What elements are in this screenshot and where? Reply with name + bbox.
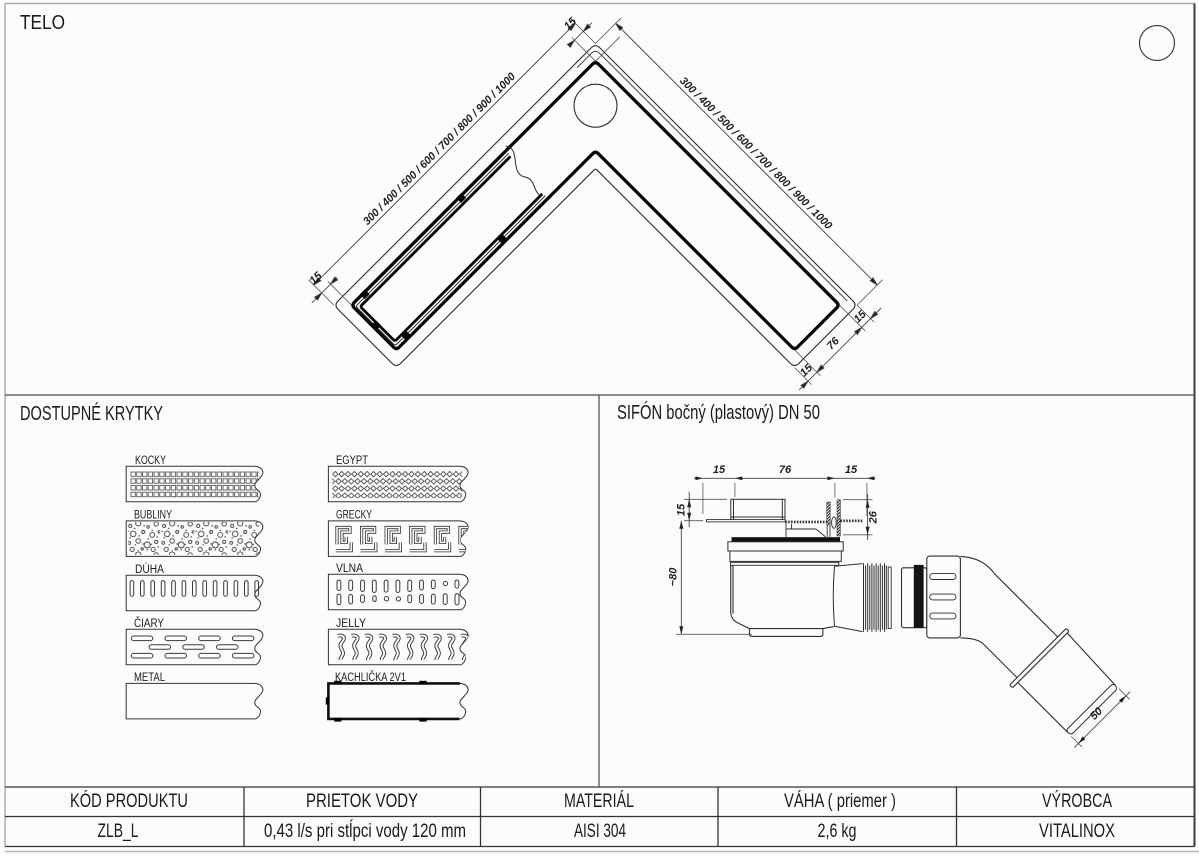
svg-text:76: 76 bbox=[779, 464, 792, 476]
svg-text:TELO: TELO bbox=[20, 12, 65, 34]
svg-text:0,43 l/s pri stĺpci vody 120 m: 0,43 l/s pri stĺpci vody 120 mm bbox=[264, 820, 466, 842]
svg-text:15: 15 bbox=[676, 503, 688, 516]
svg-text:PRIETOK VODY: PRIETOK VODY bbox=[306, 791, 418, 812]
svg-text:ČIARY: ČIARY bbox=[134, 617, 164, 630]
svg-text:SIFÓN bočný (plastový) DN 50: SIFÓN bočný (plastový) DN 50 bbox=[617, 401, 820, 424]
svg-text:300 / 400 / 500 / 600 / 700 /: 300 / 400 / 500 / 600 / 700 / 800 / 900 … bbox=[677, 75, 835, 233]
svg-text:BUBLINY: BUBLINY bbox=[134, 510, 172, 522]
svg-text:KOCKY: KOCKY bbox=[135, 455, 166, 467]
svg-text:15: 15 bbox=[713, 464, 726, 476]
svg-text:METAL: METAL bbox=[134, 672, 165, 684]
svg-text:AISI 304: AISI 304 bbox=[574, 821, 626, 842]
svg-text:26: 26 bbox=[868, 510, 880, 524]
svg-text:DOSTUPNÉ KRYTKY: DOSTUPNÉ KRYTKY bbox=[20, 402, 163, 425]
svg-text:50: 50 bbox=[1088, 705, 1106, 723]
svg-text:GRECKY: GRECKY bbox=[336, 510, 372, 522]
svg-text:VÁHA ( priemer ): VÁHA ( priemer ) bbox=[784, 791, 896, 812]
svg-text:15: 15 bbox=[307, 269, 325, 287]
svg-text:15: 15 bbox=[562, 15, 580, 33]
svg-text:DÚHA: DÚHA bbox=[135, 563, 164, 576]
svg-text:VITALINOX: VITALINOX bbox=[1039, 821, 1115, 842]
svg-text:VÝROBCA: VÝROBCA bbox=[1042, 791, 1112, 812]
svg-text:VLNA: VLNA bbox=[336, 563, 363, 575]
svg-text:~80: ~80 bbox=[668, 567, 680, 587]
svg-text:15: 15 bbox=[845, 464, 858, 476]
svg-text:EGYPT: EGYPT bbox=[336, 455, 368, 467]
svg-text:2,6 kg: 2,6 kg bbox=[818, 821, 857, 842]
svg-text:JELLY: JELLY bbox=[336, 618, 366, 630]
svg-text:300 / 400 / 500 / 600 / 700 /: 300 / 400 / 500 / 600 / 700 / 800 / 900 … bbox=[361, 70, 519, 228]
svg-text:ZLB_L: ZLB_L bbox=[98, 821, 139, 842]
svg-text:KÓD PRODUKTU: KÓD PRODUKTU bbox=[70, 790, 188, 812]
svg-text:MATERIÁL: MATERIÁL bbox=[564, 791, 634, 812]
svg-text:KACHLIČKA 2V1: KACHLIČKA 2V1 bbox=[335, 671, 406, 684]
